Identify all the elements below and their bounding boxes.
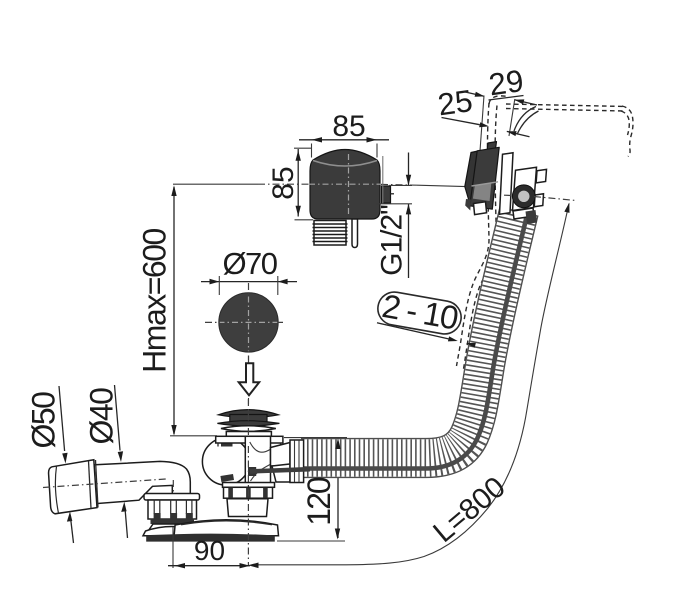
- svg-text:25: 25: [436, 83, 475, 122]
- svg-text:85: 85: [332, 110, 365, 143]
- svg-text:G1/2": G1/2": [375, 205, 408, 276]
- svg-text:Ø40: Ø40: [83, 388, 119, 445]
- svg-text:Hmax=600: Hmax=600: [137, 228, 173, 372]
- svg-text:120: 120: [301, 477, 337, 526]
- svg-text:90: 90: [194, 535, 225, 566]
- svg-text:Ø70: Ø70: [222, 246, 277, 281]
- svg-text:85: 85: [267, 166, 300, 199]
- svg-text:Ø50: Ø50: [25, 392, 61, 449]
